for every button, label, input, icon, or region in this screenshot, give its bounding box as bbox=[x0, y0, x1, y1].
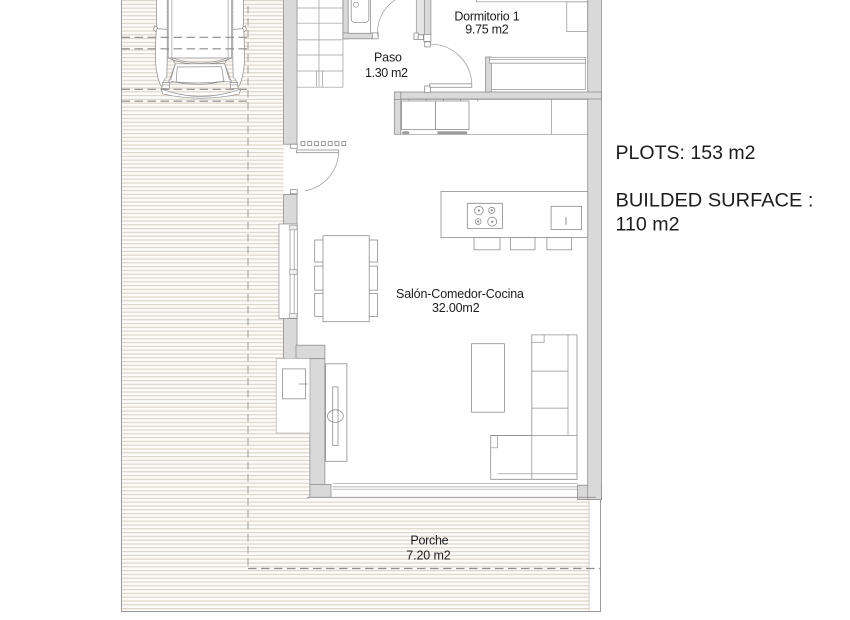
svg-text:Paso: Paso bbox=[374, 51, 402, 65]
svg-text:PLOTS: 153 m2: PLOTS: 153 m2 bbox=[616, 142, 756, 164]
svg-text:9.75 m2: 9.75 m2 bbox=[465, 23, 509, 37]
svg-text:BUILDED SURFACE :: BUILDED SURFACE : bbox=[616, 190, 814, 212]
svg-text:7.20 m2: 7.20 m2 bbox=[406, 548, 451, 562]
svg-text:Dormitorio 1: Dormitorio 1 bbox=[454, 9, 519, 23]
svg-text:110 m2: 110 m2 bbox=[616, 214, 680, 236]
svg-text:Porche: Porche bbox=[410, 534, 448, 548]
svg-text:Salón-Comedor-Cocina: Salón-Comedor-Cocina bbox=[396, 287, 524, 301]
svg-text:32.00m2: 32.00m2 bbox=[432, 301, 480, 315]
svg-text:1.30 m2: 1.30 m2 bbox=[365, 66, 408, 80]
